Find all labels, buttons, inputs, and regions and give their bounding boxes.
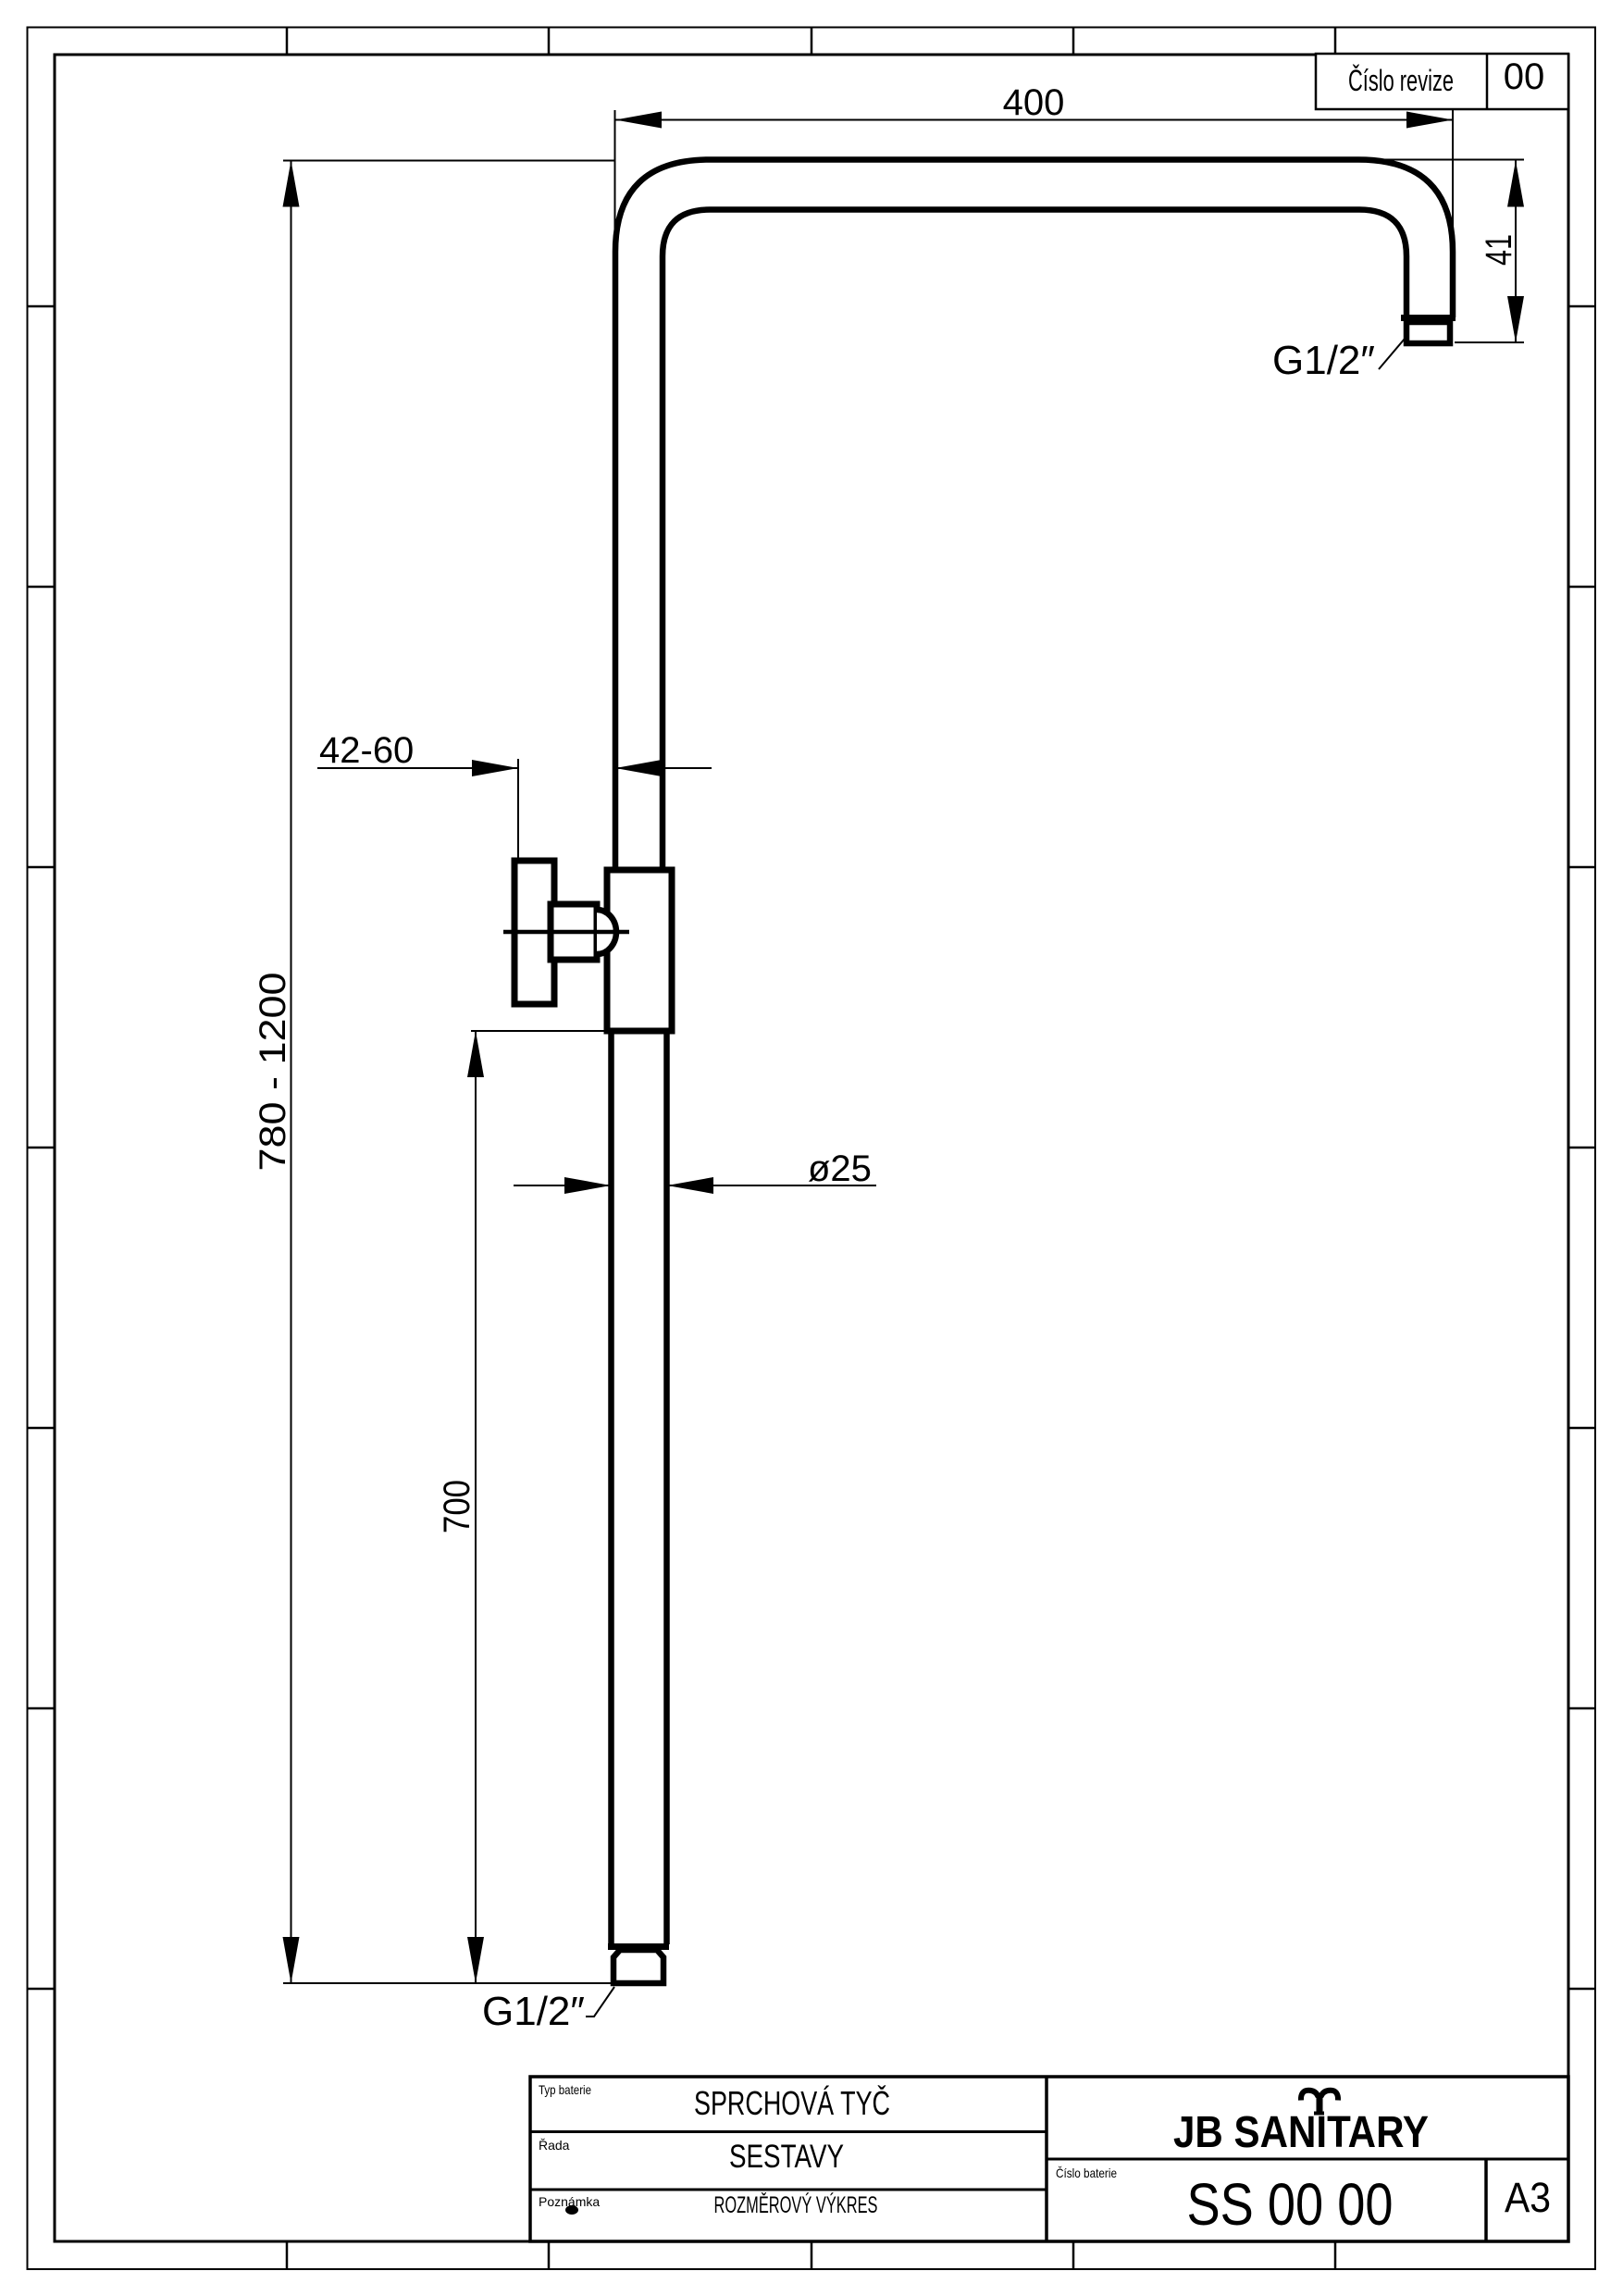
- svg-text:780 - 1200: 780 - 1200: [253, 973, 293, 1172]
- svg-text:ROZMĚROVÝ VÝKRES: ROZMĚROVÝ VÝKRES: [714, 2191, 878, 2218]
- svg-text:Číslo baterie: Číslo baterie: [1056, 2166, 1117, 2180]
- svg-text:G1/2″: G1/2″: [482, 1989, 585, 2034]
- svg-text:Typ baterie: Typ baterie: [539, 2082, 591, 2097]
- svg-text:JB SANITARY: JB SANITARY: [1173, 2108, 1429, 2157]
- svg-text:Číslo revize: Číslo revize: [1348, 64, 1454, 97]
- svg-text:Řada: Řada: [539, 2138, 570, 2153]
- svg-text:42-60: 42-60: [319, 730, 414, 771]
- svg-text:G1/2″: G1/2″: [1272, 338, 1375, 383]
- svg-text:700: 700: [437, 1480, 477, 1533]
- svg-text:ø25: ø25: [808, 1148, 872, 1189]
- svg-text:SPRCHOVÁ TYČ: SPRCHOVÁ TYČ: [694, 2084, 890, 2122]
- svg-text:SS 00 00: SS 00 00: [1187, 2171, 1394, 2238]
- svg-text:A3: A3: [1505, 2174, 1551, 2221]
- svg-text:400: 400: [1003, 82, 1065, 123]
- svg-text:00: 00: [1504, 56, 1545, 97]
- svg-text:SESTAVY: SESTAVY: [729, 2139, 844, 2175]
- svg-text:41: 41: [1479, 234, 1519, 266]
